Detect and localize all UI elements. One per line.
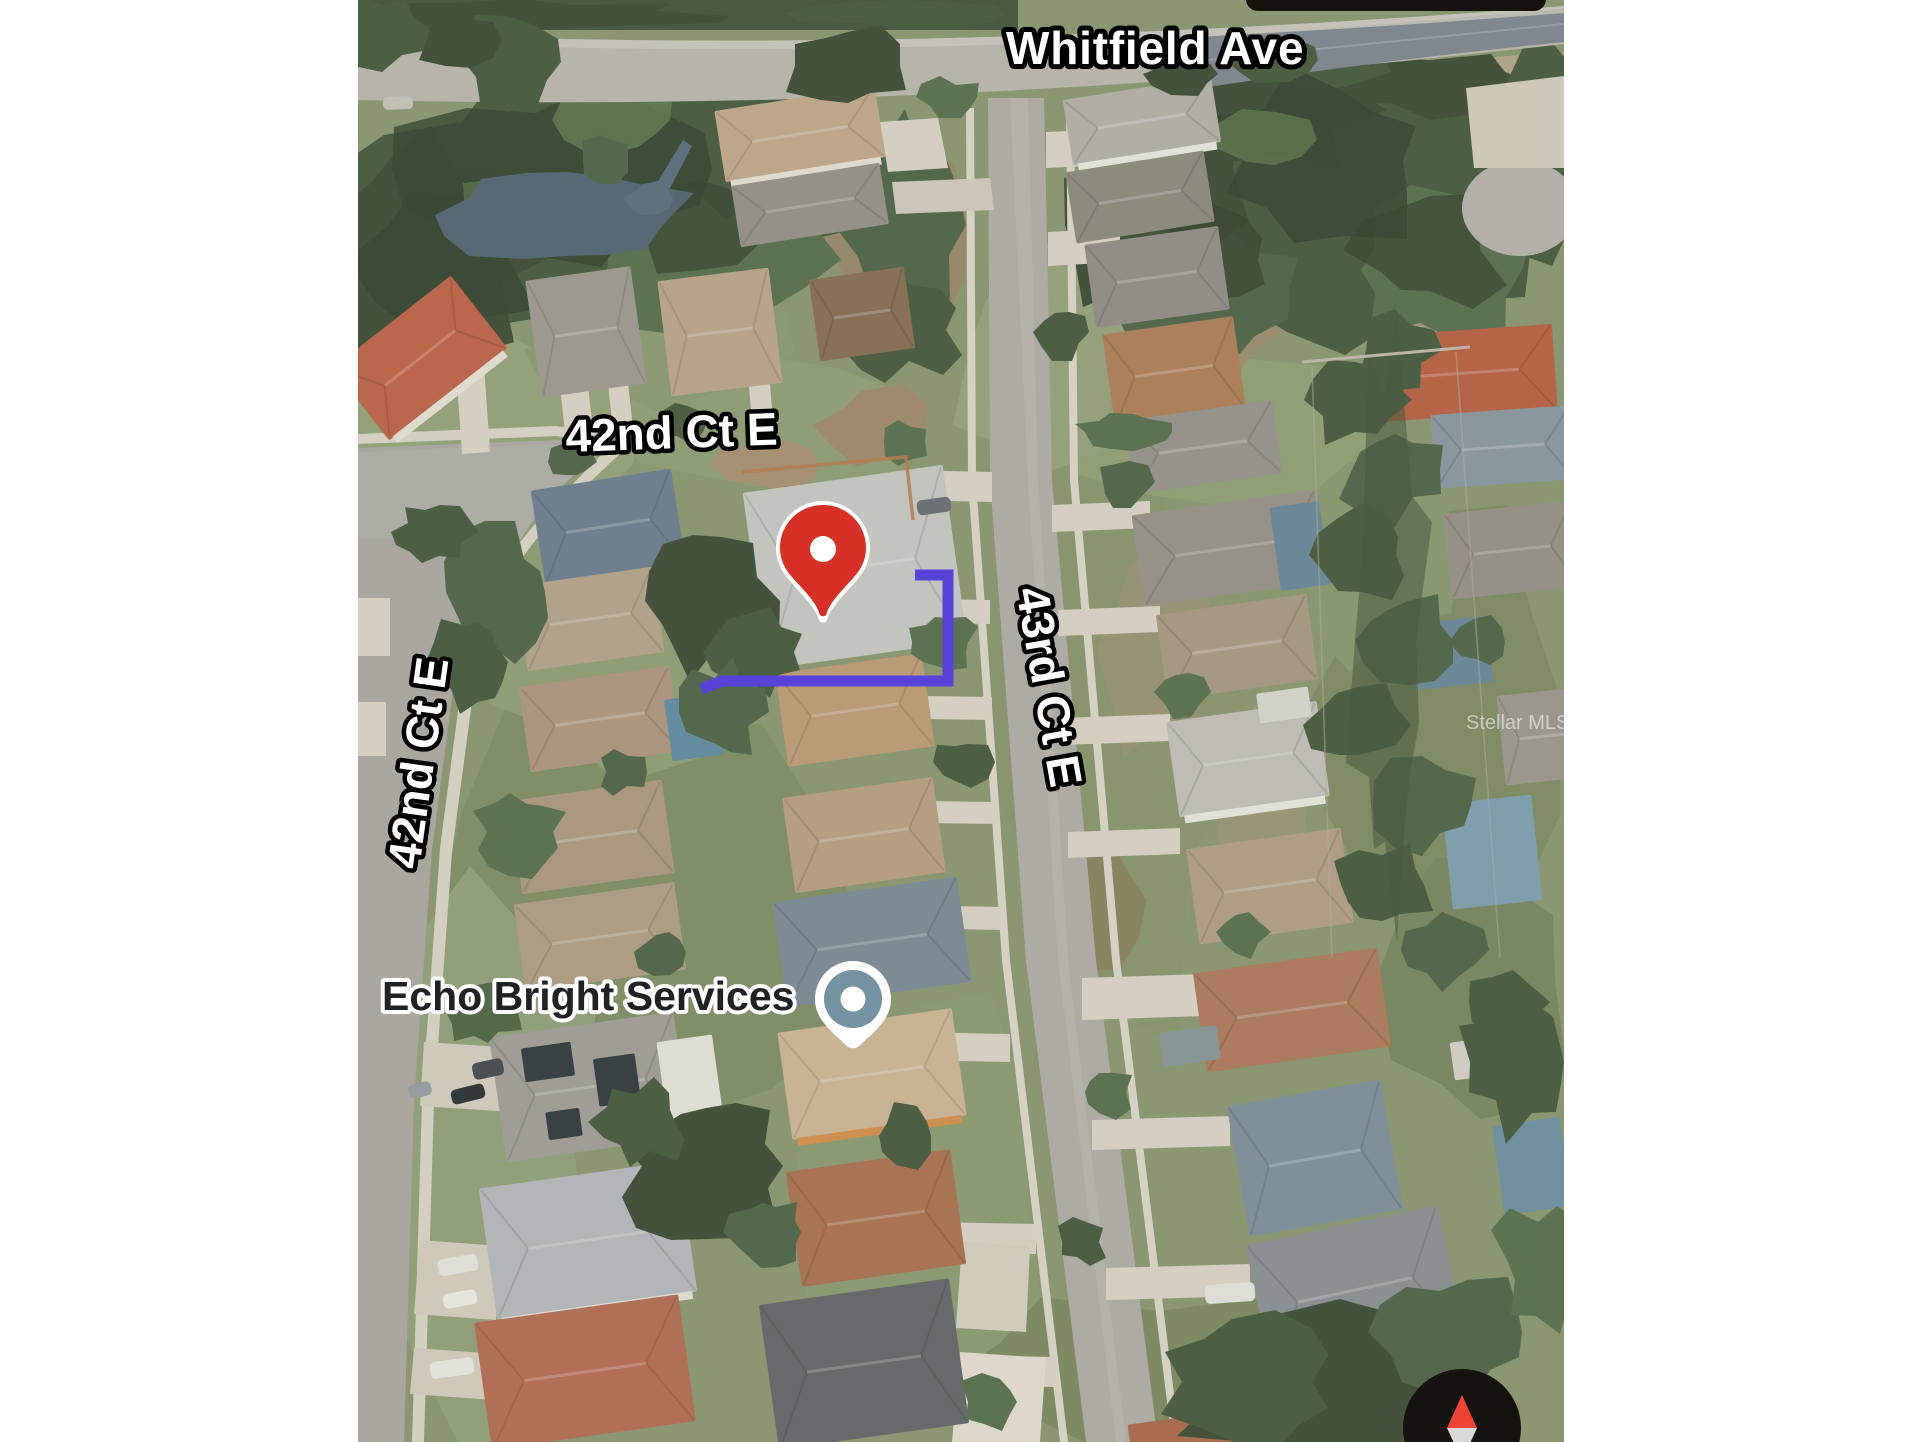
svg-text:Echo Bright Services: Echo Bright Services (382, 973, 794, 1019)
svg-text:Stellar MLS: Stellar MLS (1466, 712, 1569, 734)
svg-text:Whitfield Ave: Whitfield Ave (1006, 22, 1304, 74)
svg-text:42nd Ct E: 42nd Ct E (565, 403, 779, 462)
